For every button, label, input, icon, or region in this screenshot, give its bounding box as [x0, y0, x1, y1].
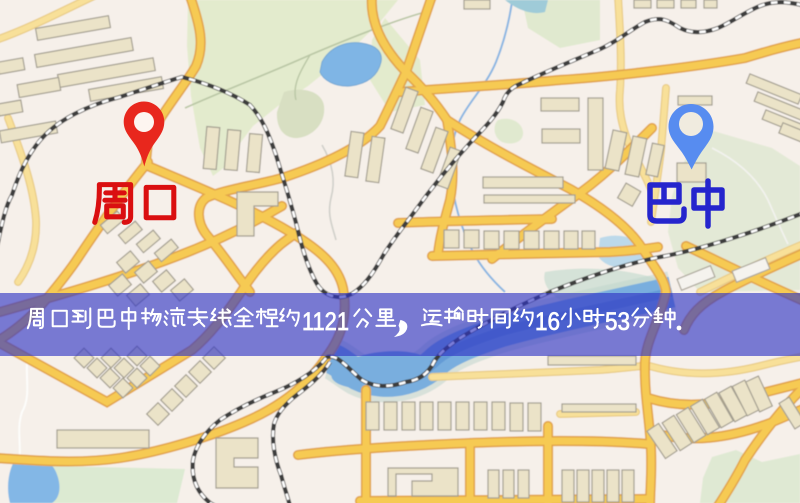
svg-text:1121: 1121 [302, 308, 349, 336]
svg-text:16: 16 [535, 308, 560, 336]
svg-text:53: 53 [605, 308, 630, 336]
